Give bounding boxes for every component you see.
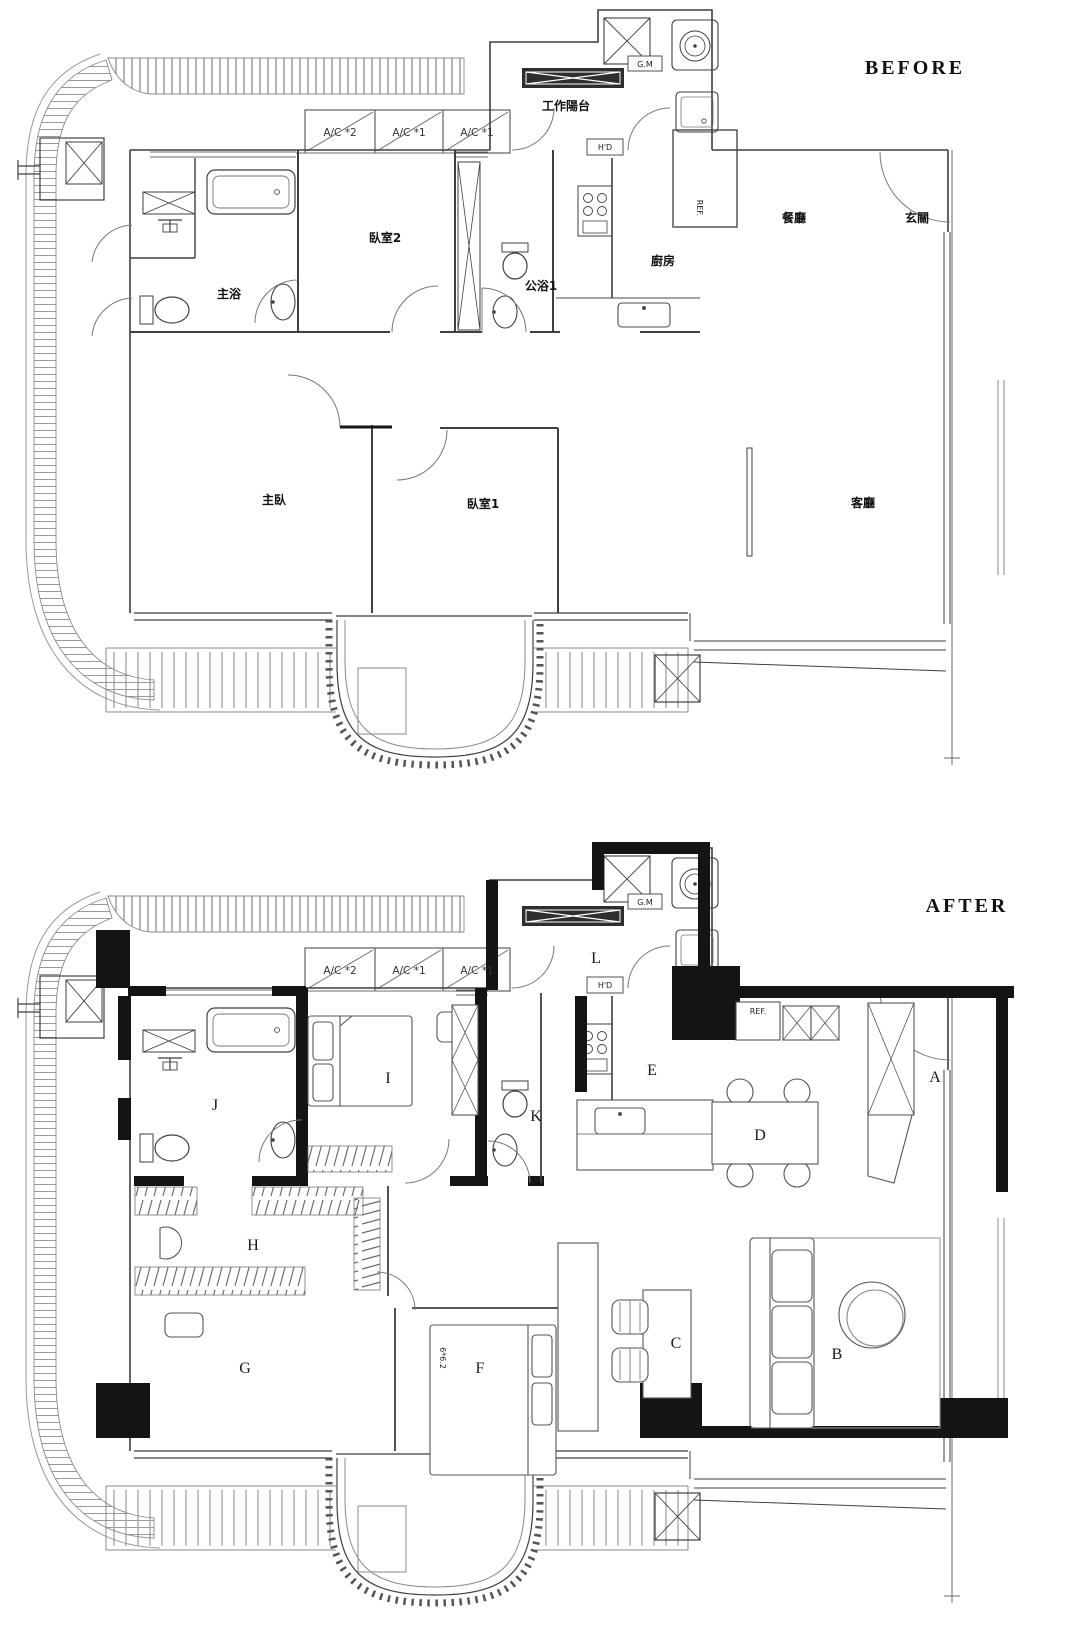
zone-label-e: E <box>647 1062 657 1079</box>
ac-label-1b: A/C *1 <box>460 127 493 139</box>
zone-label-b: B <box>832 1346 843 1363</box>
ac-label-1a: A/C *1 <box>392 965 425 977</box>
fridge-label: REF. <box>750 1007 766 1016</box>
zone-label-k: K <box>530 1108 542 1125</box>
building-shell <box>18 848 1004 1603</box>
zone-label-f: F <box>476 1360 485 1377</box>
bed-size-label: 6*6.2 <box>438 1347 447 1369</box>
zone-label-a: A <box>929 1069 941 1086</box>
before-labels: BEFORE 工作陽台 A/C *2 A/C *1 A/C *1 G.M H'D… <box>217 57 965 511</box>
room-label-kitchen: 廚房 <box>651 253 675 268</box>
nightstand <box>165 1313 203 1337</box>
stool <box>160 1227 182 1259</box>
gas-meter-label: G.M <box>637 60 653 69</box>
zone-label-d: D <box>754 1127 766 1144</box>
ac-label-1b: A/C *1 <box>460 965 493 977</box>
after-floor-plan: AFTER A/C *2 A/C *1 A/C *1 G.M H'D REF. … <box>0 838 1080 1648</box>
zone-label-j: J <box>212 1097 218 1114</box>
bed-room-f <box>430 1325 556 1475</box>
bed-room-i <box>308 1016 412 1106</box>
before-walls <box>130 150 752 613</box>
room-label-work-balcony: 工作陽台 <box>542 98 590 113</box>
room-label-living-room: 客廳 <box>850 495 875 510</box>
door-arcs <box>92 225 526 480</box>
closet-column <box>452 1005 478 1115</box>
zone-label-g: G <box>239 1360 251 1377</box>
after-title: AFTER <box>926 895 1009 917</box>
zone-label-l: L <box>591 950 601 967</box>
hood-label: H'D <box>598 143 612 152</box>
zone-label-h: H <box>247 1237 259 1254</box>
before-floor-plan: BEFORE 工作陽台 A/C *2 A/C *1 A/C *1 G.M H'D… <box>0 0 1080 810</box>
fridge-label: REF. <box>695 200 704 216</box>
kitchen-counter <box>577 1100 713 1170</box>
room-label-master-bath: 主浴 <box>217 286 242 301</box>
room-label-master-bedroom: 主臥 <box>262 492 287 507</box>
before-title: BEFORE <box>865 57 965 79</box>
zone-label-i: I <box>385 1070 390 1087</box>
gas-meter-label: G.M <box>637 898 653 907</box>
room-label-public-bath1: 公浴1 <box>525 278 557 293</box>
zone-label-c: C <box>671 1335 682 1352</box>
hood-label: H'D <box>598 981 612 990</box>
fridge <box>673 130 737 227</box>
desk <box>643 1290 691 1398</box>
living-set <box>750 1238 940 1428</box>
closet-hangers <box>135 1146 392 1295</box>
before-fixtures <box>92 130 737 480</box>
room-label-foyer: 玄關 <box>905 210 929 225</box>
room-label-bedroom2: 臥室2 <box>369 230 401 245</box>
floor-plan-comparison: BEFORE 工作陽台 A/C *2 A/C *1 A/C *1 G.M H'D… <box>0 0 1080 1648</box>
ac-label-2: A/C *2 <box>323 965 356 977</box>
room-label-bedroom1: 臥室1 <box>467 496 499 511</box>
ac-label-2: A/C *2 <box>323 127 356 139</box>
building-shell <box>18 10 1004 765</box>
ac-label-1a: A/C *1 <box>392 127 425 139</box>
cabinet <box>558 1243 598 1431</box>
room-label-dining: 餐廳 <box>782 210 806 225</box>
